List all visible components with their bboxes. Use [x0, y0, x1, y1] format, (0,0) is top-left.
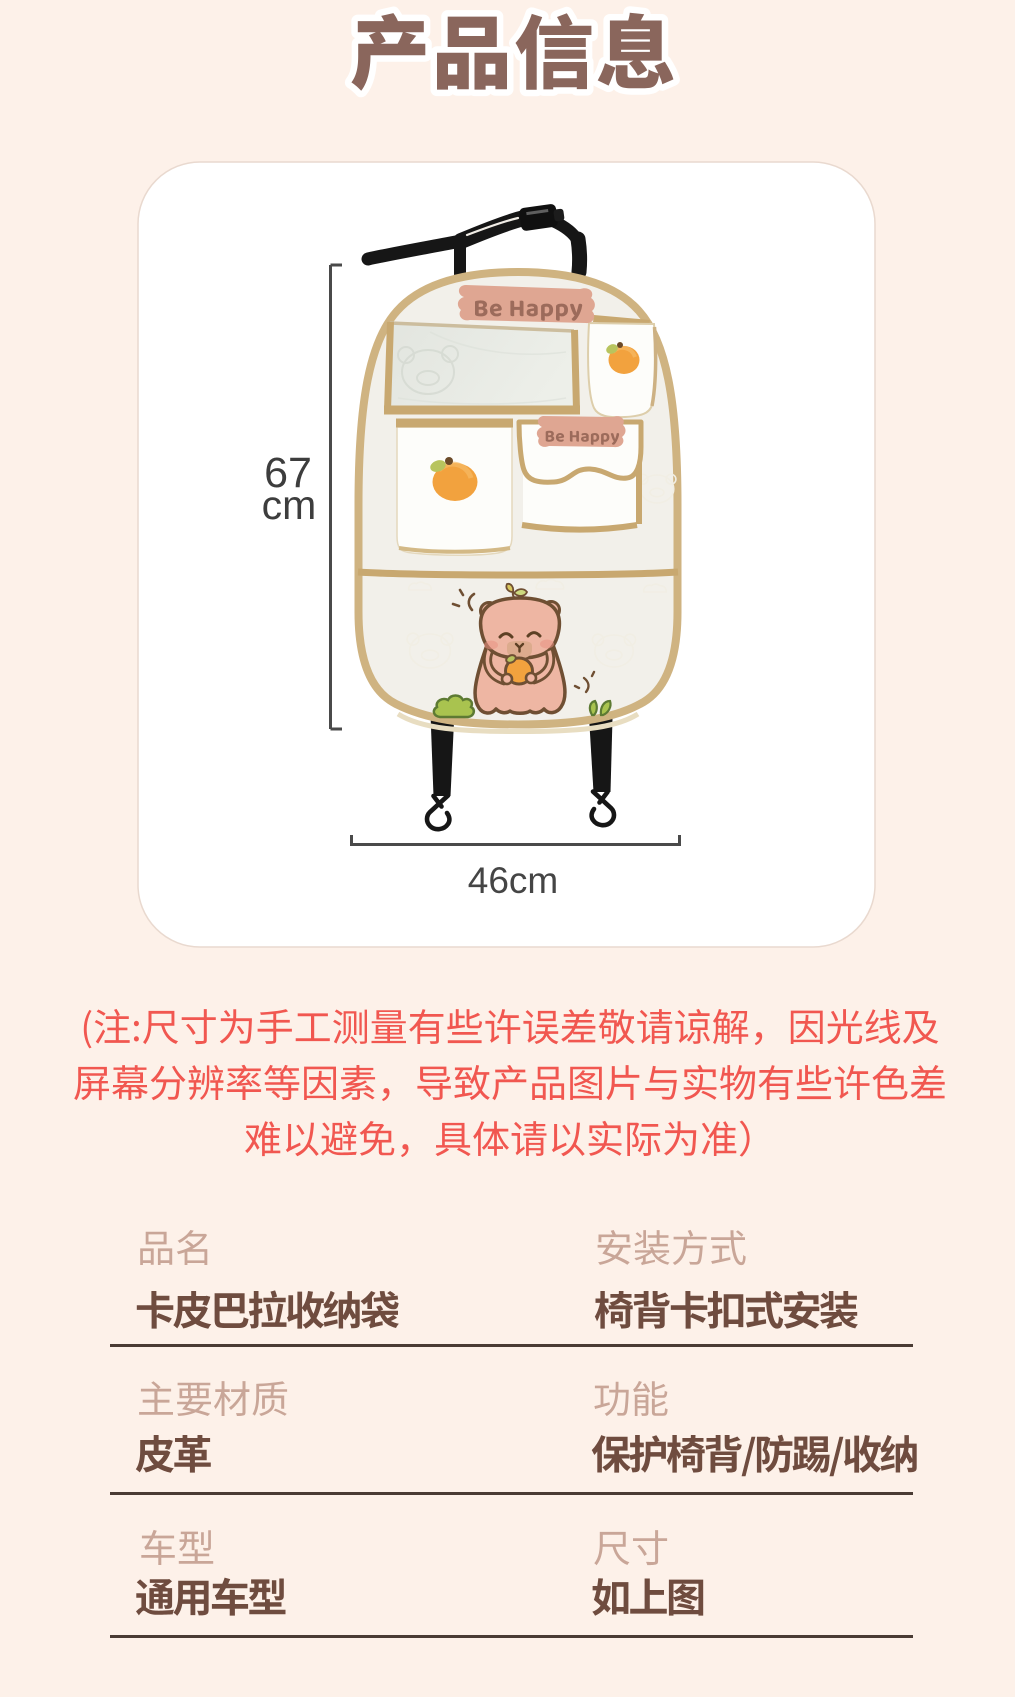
svg-text:cm: cm — [262, 482, 317, 528]
svg-text:46cm: 46cm — [468, 860, 558, 901]
